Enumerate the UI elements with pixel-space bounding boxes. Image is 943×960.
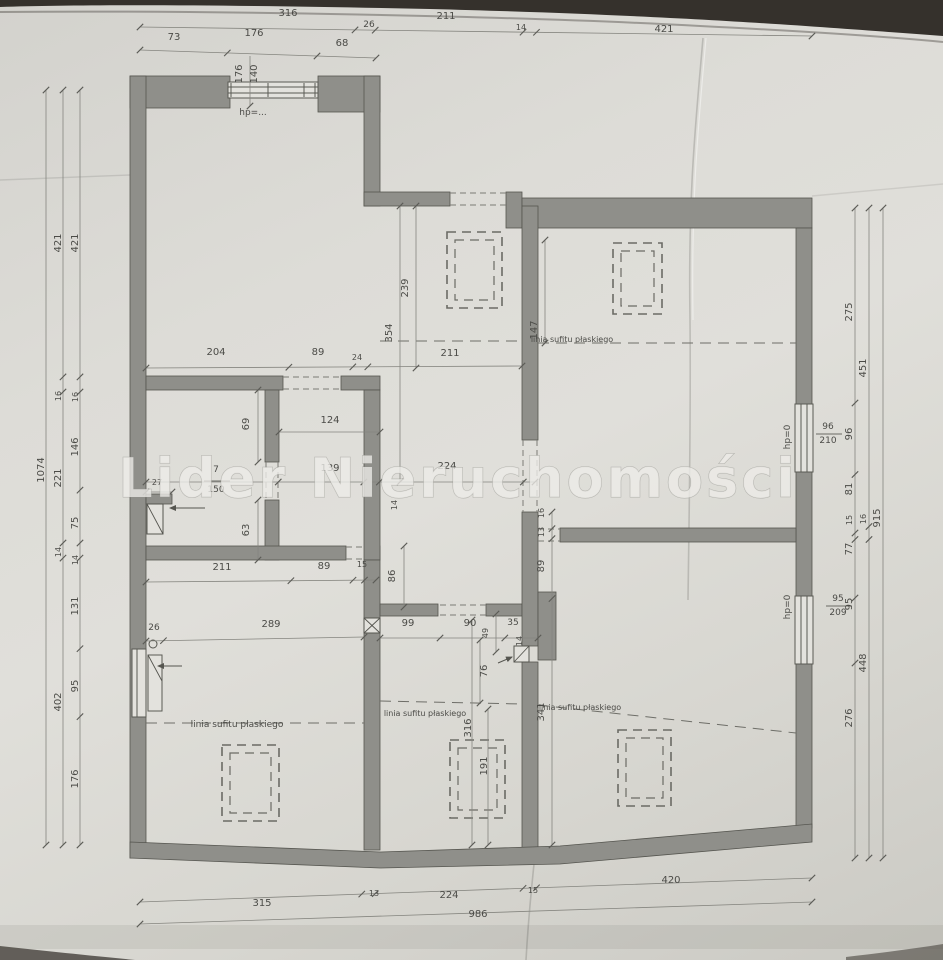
window-right-2 xyxy=(795,596,813,664)
dim-label: 124 xyxy=(320,415,339,426)
dim-label: 26 xyxy=(363,20,375,30)
dim-label: 451 xyxy=(858,358,869,377)
dim-label: hp=... xyxy=(239,108,267,118)
dim-label: 316 xyxy=(278,8,297,19)
dim-label: 1074 xyxy=(36,457,47,482)
wall-segment xyxy=(364,633,380,850)
dim-label: 16 xyxy=(71,392,80,402)
dim-label: linia sufitu płaskiego xyxy=(384,709,466,718)
window-left-reveal xyxy=(148,655,162,711)
wall-segment xyxy=(796,472,812,596)
dim-label: 15 xyxy=(845,515,854,525)
dim-label: 146 xyxy=(70,437,81,456)
dim-label: 289 xyxy=(261,619,280,630)
dimension-line xyxy=(146,580,376,582)
dim-label: 95 xyxy=(70,680,81,693)
dim-label: 176 xyxy=(70,769,81,788)
dim-label: 26 xyxy=(148,623,160,633)
dim-label: 96 xyxy=(844,428,855,441)
dim-label: 275 xyxy=(844,302,855,321)
dim-label: 915 xyxy=(872,508,883,527)
dim-label: 81 xyxy=(844,483,855,496)
dim-label: 315 xyxy=(252,898,271,909)
wall-segment xyxy=(796,228,812,404)
wall-segment xyxy=(486,604,522,616)
wall-segment xyxy=(341,376,380,390)
dim-label: 68 xyxy=(336,38,349,49)
dim-label: 90 xyxy=(464,618,477,629)
dim-label: 276 xyxy=(844,708,855,727)
dim-label: 63 xyxy=(241,524,252,537)
ceiling-line-dashed xyxy=(380,701,522,704)
skylight-inner xyxy=(626,738,663,798)
vertical-fold-crease xyxy=(688,38,703,600)
dim-label: 239 xyxy=(400,278,411,297)
dim-label: 13 xyxy=(369,889,379,898)
dim-label: 316 xyxy=(463,718,474,737)
dim-label: 221 xyxy=(53,468,64,487)
dim-label: 86 xyxy=(387,570,398,583)
dim-label: 89 xyxy=(536,560,547,573)
dim-label: 986 xyxy=(468,909,487,920)
wall-segment xyxy=(380,604,438,616)
wall-segment xyxy=(560,528,796,542)
dim-label: 14 xyxy=(515,636,524,646)
dimension-line xyxy=(140,50,376,58)
wall-segment xyxy=(538,592,556,660)
skylight-inner xyxy=(455,240,494,300)
wall-segment xyxy=(522,512,538,646)
floor-plan-canvas: 31626211144217317668176140hp=...10744211… xyxy=(0,0,943,960)
dim-label: 211 xyxy=(212,562,231,573)
dim-label: 14 xyxy=(54,547,63,557)
dim-label: 35 xyxy=(507,618,518,628)
dim-label: 16 xyxy=(54,391,63,401)
dim-label: 77 xyxy=(844,543,855,556)
dim-label: 176 xyxy=(244,28,263,39)
dim-label: 99 xyxy=(402,618,415,629)
dim-label: 14 xyxy=(71,555,80,565)
dimension-line xyxy=(146,637,364,641)
dim-label: hp=0 xyxy=(783,594,793,619)
dim-label: 211 xyxy=(436,11,455,22)
dim-label: 209 xyxy=(829,608,846,618)
wall-segment xyxy=(506,192,522,228)
dimension-line xyxy=(146,366,522,368)
wall-segment xyxy=(522,198,812,228)
skylight-outline xyxy=(613,243,662,314)
dim-label: 421 xyxy=(53,233,64,252)
dim-label: 210 xyxy=(819,436,836,446)
dim-label: 176 xyxy=(234,64,245,83)
dim-label: 191 xyxy=(479,756,490,775)
dim-label: 73 xyxy=(168,32,181,43)
dim-label: 95 xyxy=(832,594,843,604)
dim-label: 204 xyxy=(206,347,225,358)
dimension-line xyxy=(140,878,812,902)
skylight-inner xyxy=(230,753,271,813)
dim-label: 89 xyxy=(318,561,331,572)
bottom-shadow-band xyxy=(0,925,943,949)
wall-segment xyxy=(796,664,812,828)
dim-label: linia sufitu płaskiego xyxy=(531,335,613,344)
dim-label: 16 xyxy=(859,514,868,524)
dim-label: 211 xyxy=(440,348,459,359)
dim-label: 75 xyxy=(70,517,81,530)
dim-label: 49 xyxy=(481,628,490,638)
shaft-arrow xyxy=(498,657,512,663)
dim-label: linia sufitu płaskiego xyxy=(191,720,284,730)
dim-label: 14 xyxy=(516,23,526,32)
dim-label: 140 xyxy=(249,64,260,83)
dim-label: 24 xyxy=(352,353,362,362)
dim-label: 421 xyxy=(654,24,673,35)
watermark: Lider Nieruchomości xyxy=(118,447,798,510)
dim-label: linia sufitu płaskiego xyxy=(539,703,621,712)
dim-label: 224 xyxy=(439,890,458,901)
wall-segment xyxy=(146,376,283,390)
dim-label: 13 xyxy=(537,527,546,537)
dim-label: 354 xyxy=(384,323,395,342)
dim-label: 15 xyxy=(357,560,367,569)
dim-label: 69 xyxy=(241,418,252,431)
dim-label: 421 xyxy=(70,233,81,252)
dim-label: 15 xyxy=(528,886,538,895)
skylight-inner xyxy=(458,748,497,810)
dim-label: 89 xyxy=(312,347,325,358)
dim-label: 448 xyxy=(858,653,869,672)
dim-label: 131 xyxy=(70,596,81,615)
dim-label: 96 xyxy=(822,422,834,432)
dim-label: 76 xyxy=(479,665,490,678)
dim-label: 402 xyxy=(53,692,64,711)
right-crease xyxy=(812,184,943,196)
dim-label: hp=0 xyxy=(783,424,793,449)
wall-segment xyxy=(146,546,346,560)
dimension-line xyxy=(140,27,812,36)
wall-segment xyxy=(522,662,538,852)
dim-label: 420 xyxy=(661,875,680,886)
left-crease xyxy=(0,175,130,180)
wall-segment xyxy=(364,192,450,206)
window-left xyxy=(132,649,146,717)
photographed-floor-plan: 31626211144217317668176140hp=...10744211… xyxy=(0,0,943,960)
skylight-inner xyxy=(621,251,654,306)
wall-segment xyxy=(364,76,380,206)
skylights xyxy=(222,232,671,821)
